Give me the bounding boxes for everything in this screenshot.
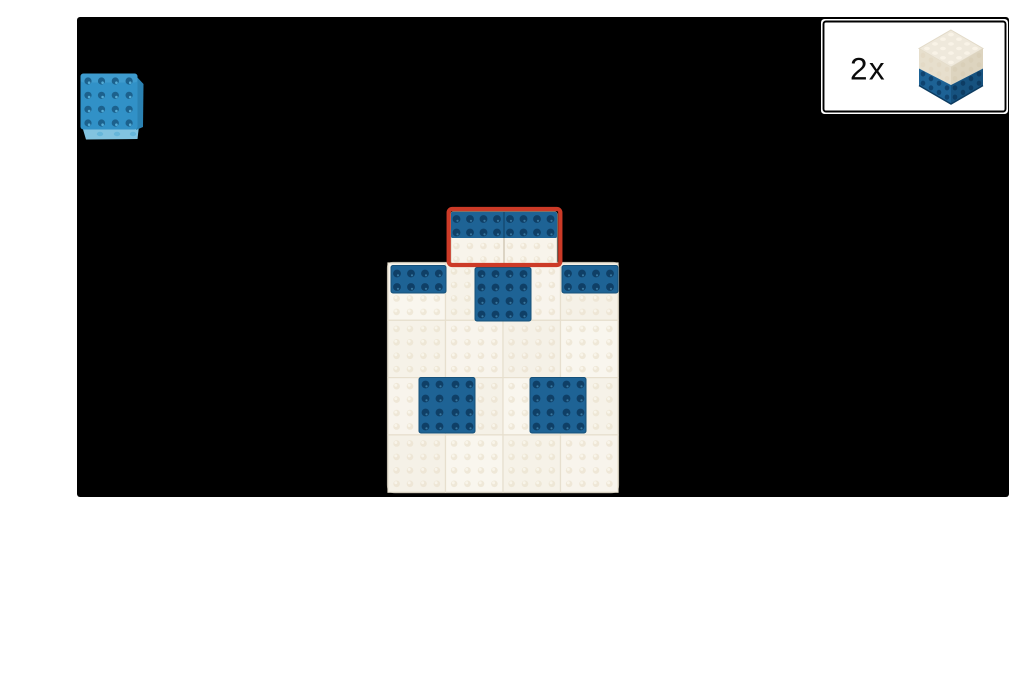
svg-text:2x: 2x xyxy=(850,51,886,87)
